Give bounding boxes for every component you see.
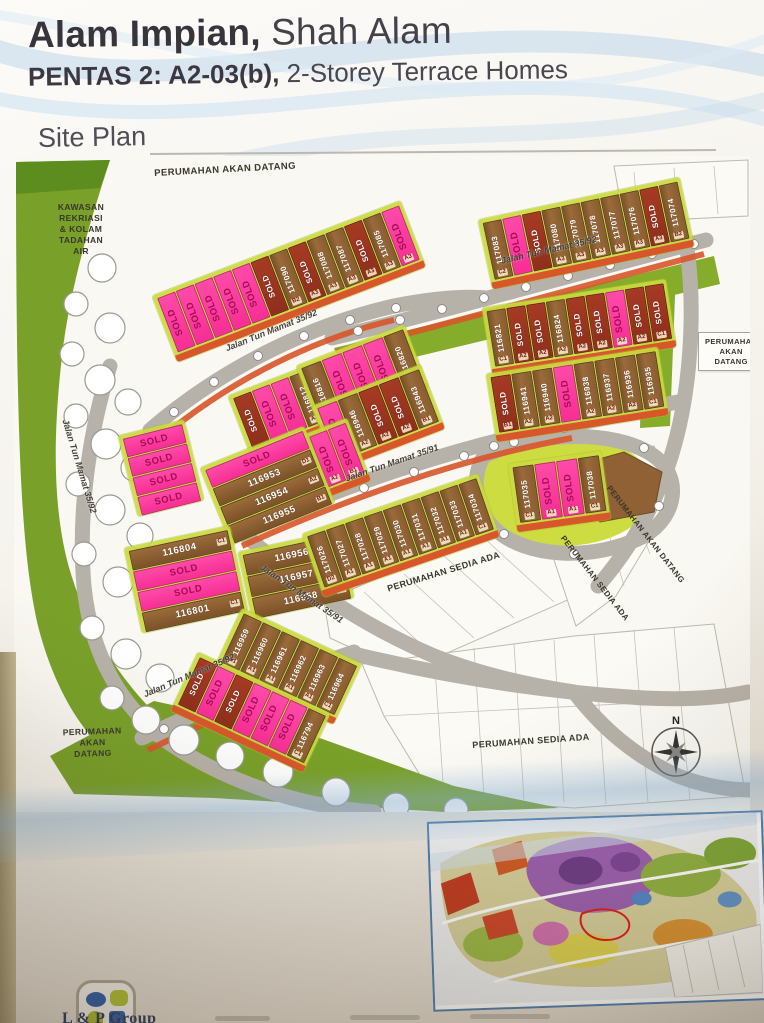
sold-label: SOLD <box>144 452 174 468</box>
unit-type-label: D2 <box>326 575 337 585</box>
unit-type-label: A2 <box>586 408 597 416</box>
sold-label: SOLD <box>336 437 355 467</box>
area-label-line: AIR <box>22 246 140 257</box>
lot-number: 116940 <box>540 382 552 412</box>
sold-label: SOLD <box>541 476 554 505</box>
illegible-fine-print <box>350 1015 420 1020</box>
title-bold: Alam Impian, <box>28 12 261 55</box>
sold-label: SOLD <box>573 313 585 338</box>
unit-type-label: A2 <box>518 353 529 361</box>
area-label-line: REKRIASI <box>22 213 140 224</box>
unit-type-label: B1 <box>503 422 514 430</box>
unit-type-label: A2 <box>597 340 608 348</box>
unit-type-label: A3 <box>403 253 414 263</box>
lot-number: 117090 <box>279 264 297 294</box>
unit-type-label: A3 <box>575 252 586 261</box>
unit-type-label: A3 <box>654 235 665 244</box>
sold-label: SOLD <box>185 300 204 330</box>
sold-label: SOLD <box>279 391 298 421</box>
page-title: Alam Impian, Shah Alam <box>28 10 452 56</box>
lot-number: 116801 <box>175 604 211 621</box>
lot-number: 117076 <box>628 206 642 236</box>
unit-type-label: A2 <box>627 402 638 410</box>
lot-number: 117077 <box>608 210 622 240</box>
poster-header: Alam Impian, Shah Alam PENTAS 2: A2-03(b… <box>0 0 764 170</box>
sold-label: SOLD <box>261 274 277 299</box>
unit-type-label: A1 <box>439 536 450 546</box>
lot-number: 117029 <box>373 525 390 555</box>
lot-number: 116956 <box>274 547 310 564</box>
lot-number: 116964 <box>327 671 346 700</box>
unit-type-label: A1 <box>283 683 295 693</box>
lot-number: 117026 <box>316 544 333 574</box>
lot-number: 117034 <box>467 492 484 522</box>
lot-number: 116794 <box>296 721 315 750</box>
unit-type-label: C1 <box>498 356 509 364</box>
unit-type-label: A2 <box>617 337 628 345</box>
unit-type-label: A2 <box>329 474 340 484</box>
lot-number: 116941 <box>519 385 531 415</box>
unit-type-label: D1 <box>300 456 312 466</box>
lot-number: 116804 <box>162 542 198 559</box>
sold-label: SOLD <box>223 286 242 316</box>
area-label-line: DATANG <box>705 357 750 367</box>
unit-type-label: A3 <box>309 289 320 299</box>
unit-type-label: C1 <box>216 537 227 546</box>
unit-type-label: C1 <box>291 749 303 759</box>
area-label-line: & KOLAM <box>22 224 140 235</box>
area-label-line: AKAN <box>705 347 750 357</box>
unit-type-label: A1 <box>302 692 314 702</box>
unit-type-label: A1 <box>245 665 257 675</box>
unit-type-label: C1 <box>656 331 667 339</box>
sold-label: SOLD <box>391 221 410 251</box>
unit-type-label: C1 <box>477 523 488 533</box>
sold-label: SOLD <box>390 395 406 420</box>
unit-type-label: A3 <box>365 268 376 278</box>
area-label: PERUMAHANAKANDATANG <box>44 725 141 761</box>
lot-number: 116943 <box>410 385 428 415</box>
logo-shape-icon <box>110 990 128 1006</box>
unit-type-label: A1 <box>345 568 356 578</box>
unit-type-label: A1 <box>401 549 412 559</box>
unit-type-label: B2 <box>673 231 684 240</box>
site-plan: N SOLDSOLDSOLDSOLDSOLDSOLD117090B2SOLDA3… <box>14 156 750 812</box>
lot-number: 117087 <box>335 243 353 273</box>
lot-number: 117027 <box>335 538 352 568</box>
lot-number: 116935 <box>643 366 655 396</box>
unit-type-label: A3 <box>634 239 645 248</box>
unit-type-label: A1 <box>420 542 431 552</box>
area-label-line: KAWASAN <box>22 202 140 213</box>
unit-type-label: C1 <box>229 599 240 608</box>
unit-type-label: A1 <box>382 555 393 565</box>
sold-label: SOLD <box>648 204 661 229</box>
area-label-line: PERUMAHAN <box>705 337 750 347</box>
photo-left-edge <box>0 652 16 1023</box>
unit-type-label: C1 <box>590 503 601 511</box>
compass-north-label: N <box>672 715 680 727</box>
lot-number: 117031 <box>410 512 427 542</box>
lot-number: 117074 <box>667 197 681 227</box>
unit-type-label: A1 <box>458 529 469 539</box>
lot-number: 117035 <box>520 479 532 508</box>
unit-type-label: A1 <box>568 506 579 514</box>
sold-label: SOLD <box>241 279 260 309</box>
unit-type-label: B1 <box>421 415 432 425</box>
sold-label: SOLD <box>260 398 279 428</box>
lot-cluster-c14: 117035C1SOLDA1SOLDA1117038C1 <box>508 451 611 532</box>
sold-label: SOLD <box>139 433 169 449</box>
title-light: Shah Alam <box>260 10 452 53</box>
sold-label: SOLD <box>652 300 664 325</box>
unit-type-label: A2 <box>557 346 568 354</box>
unit-type-label: A2 <box>359 439 370 449</box>
lot-number: 117030 <box>392 518 409 548</box>
area-label: KAWASANREKRIASI& KOLAMTADAHANAIR <box>22 202 140 257</box>
illegible-fine-print <box>470 1014 550 1019</box>
unit-type-label: C1 <box>321 701 333 711</box>
unit-type-label: A1 <box>264 674 276 684</box>
unit-type-label: A3 <box>328 282 339 292</box>
unit-type-label: A2 <box>400 423 411 433</box>
sold-label: SOLD <box>611 304 625 333</box>
developer-logo-text: L & P Group <box>62 1010 202 1023</box>
unit-type-label: A2 <box>523 418 534 426</box>
lot-number: 116824 <box>553 313 565 343</box>
lot-number: 117033 <box>448 499 465 529</box>
sold-label: SOLD <box>167 307 186 337</box>
logo-shape-icon <box>86 992 106 1007</box>
lot-number: 117085 <box>372 228 390 258</box>
unit-type-label: C2 <box>497 268 508 277</box>
sold-label: SOLD <box>225 689 242 714</box>
unit-type-label: C1 <box>648 399 659 407</box>
unit-type-label: A1 <box>546 509 557 517</box>
unit-type-label: A1 <box>364 562 375 572</box>
sold-label: SOLD <box>299 259 315 284</box>
sold-label: SOLD <box>560 379 574 408</box>
lot-number: 117088 <box>316 250 334 280</box>
unit-type-label: A3 <box>347 275 358 285</box>
sold-label: SOLD <box>169 563 199 578</box>
lot-number: 117038 <box>586 470 598 499</box>
subtitle-bold: PENTAS 2: A2-03(b), <box>28 58 280 92</box>
lot-number: 116821 <box>494 323 506 353</box>
unit-type-label: A2 <box>538 349 549 357</box>
unit-type-label: A2 <box>636 334 647 342</box>
sold-label: SOLD <box>243 408 259 433</box>
unit-type-label: B1 <box>315 493 327 503</box>
sold-label: SOLD <box>173 584 203 599</box>
lot-number: 117032 <box>429 505 446 535</box>
unit-type-label: A2 <box>308 475 320 485</box>
sold-label: SOLD <box>514 322 526 347</box>
sold-label: SOLD <box>499 391 511 416</box>
unit-type-label: C1 <box>524 512 535 520</box>
sold-label: SOLD <box>534 319 546 344</box>
sold-label: SOLD <box>355 238 371 263</box>
sold-label: SOLD <box>632 303 644 328</box>
unit-type-label: A2 <box>544 415 555 423</box>
unit-type-label: A3 <box>595 247 606 256</box>
poster-photo: Alam Impian, Shah Alam PENTAS 2: A2-03(b… <box>0 0 764 1023</box>
lot-number: 117028 <box>354 531 371 561</box>
unit-type-label: A2 <box>577 343 588 351</box>
sold-label: SOLD <box>204 293 223 323</box>
unit-type-label: A3 <box>556 256 567 265</box>
sold-label: SOLD <box>370 403 386 428</box>
unit-type-label: A3 <box>384 260 395 270</box>
site-plan-heading: Site Plan <box>38 121 147 154</box>
area-label-line: TADAHAN <box>22 235 140 246</box>
unit-type-label: B2 <box>291 296 302 306</box>
unit-type-label: A3 <box>614 243 625 252</box>
lot-number: 116936 <box>623 369 635 399</box>
illegible-fine-print <box>215 1016 270 1021</box>
sold-label: SOLD <box>593 310 605 335</box>
sold-label: SOLD <box>149 472 179 488</box>
sold-label: SOLD <box>563 473 576 502</box>
sold-label: SOLD <box>154 491 184 507</box>
lot-number: 116937 <box>602 372 614 402</box>
subtitle-light: 2-Storey Terrace Homes <box>279 54 568 88</box>
unit-type-label: A2 <box>380 431 391 441</box>
unit-type-label: A2 <box>606 405 617 413</box>
lot-number: 116938 <box>581 376 593 406</box>
area-label: PERUMAHANAKANDATANG <box>698 332 750 371</box>
location-inset-map <box>427 810 764 1012</box>
